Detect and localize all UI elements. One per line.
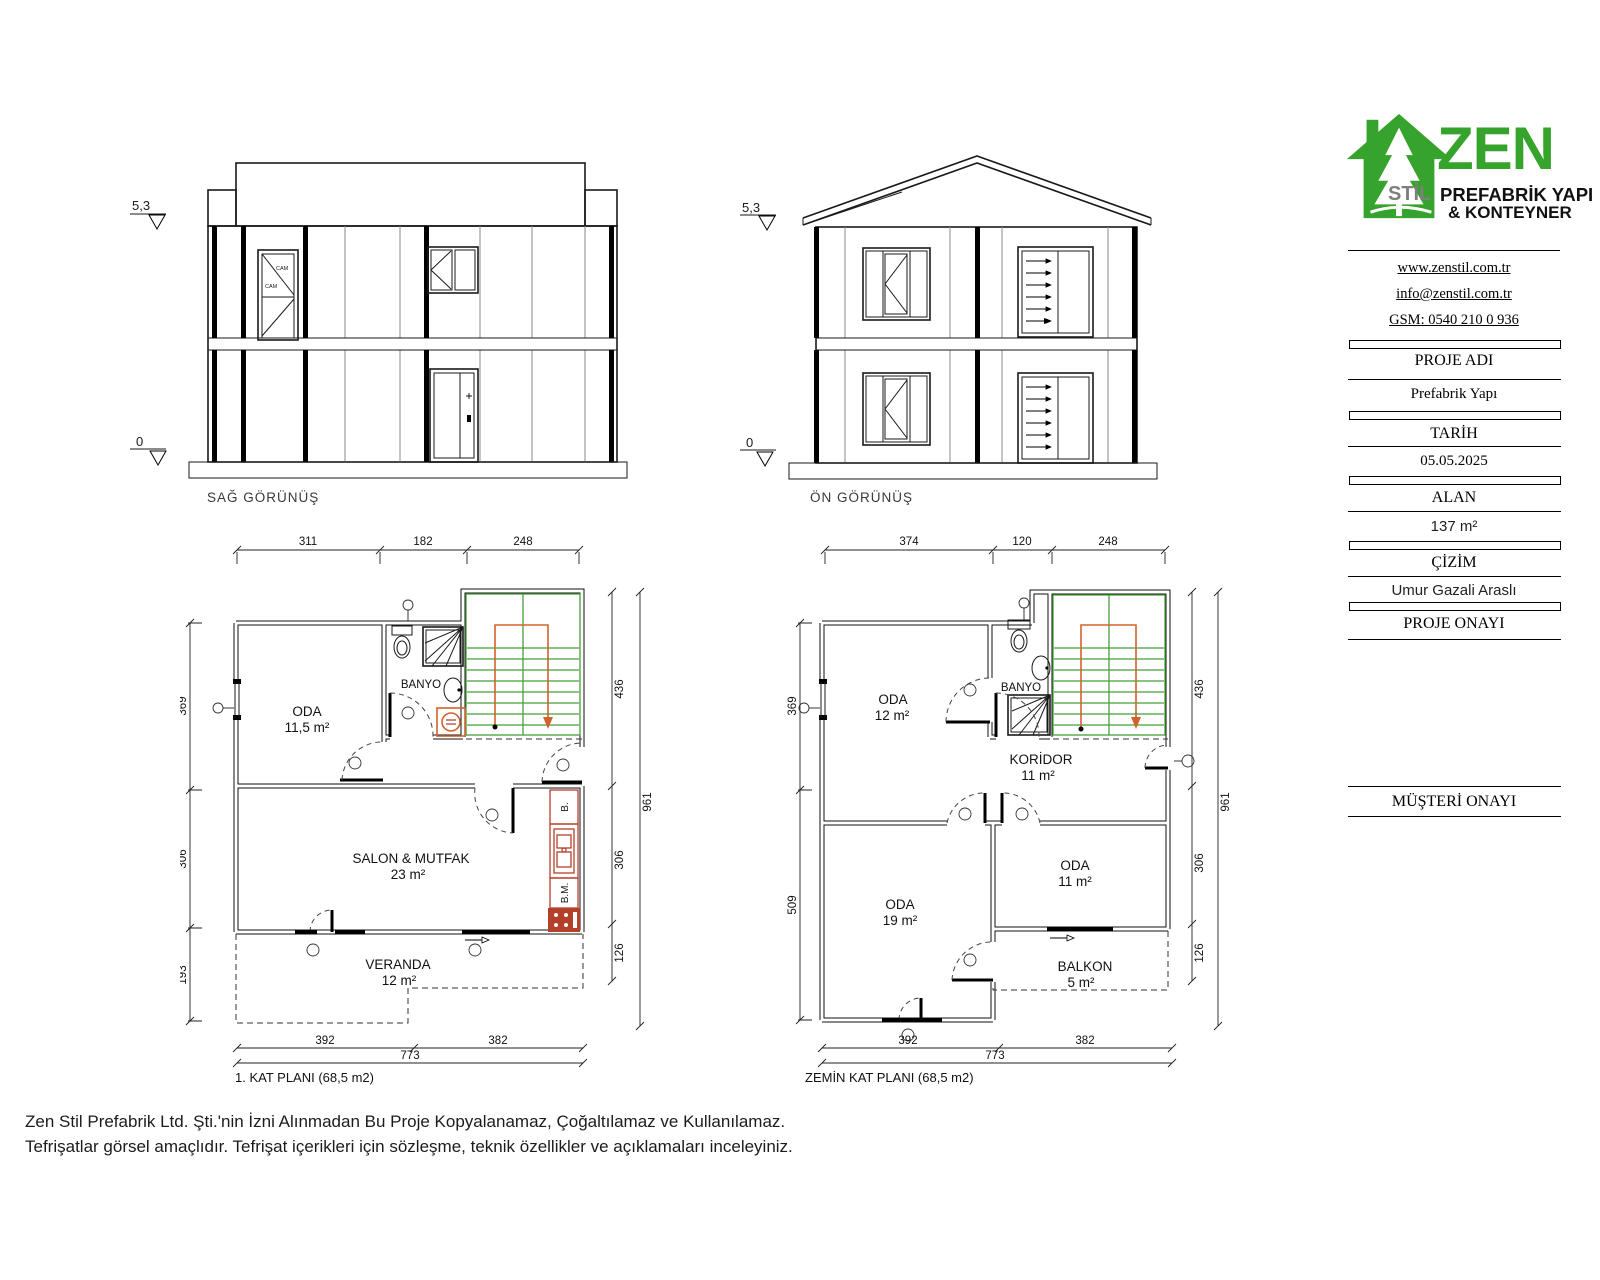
divider-line (1348, 446, 1561, 447)
shower-icon (423, 627, 463, 666)
dim: 306 (1194, 853, 1206, 872)
level-marker-bottom: 0 (740, 435, 776, 466)
divider-bar (1349, 340, 1561, 349)
upper-left-window (863, 248, 930, 320)
lower-sliding-door (1018, 373, 1093, 463)
dim: 382 (488, 1035, 507, 1047)
entry-door (430, 369, 478, 462)
dim: 369 (787, 696, 799, 715)
dim: 120 (1012, 536, 1031, 548)
room-area: 11 m² (1058, 874, 1092, 889)
field-label-proje-adi: PROJE ADI (1348, 352, 1560, 370)
divider-line (1348, 816, 1561, 817)
dim: 311 (299, 536, 317, 548)
walls (819, 592, 1168, 1020)
room-name: ODA (1060, 858, 1089, 873)
dim: 374 (899, 536, 919, 548)
balcony-window: CAM CAM (258, 250, 298, 340)
ground-brick (789, 463, 1157, 479)
level-marker-top: 5,3 (740, 200, 776, 230)
disclaimer-line2: Tefrişatlar görsel amaçlıdır. Tefrişat i… (25, 1137, 793, 1157)
field-label-alan: ALAN (1348, 489, 1560, 507)
brand-stil: STİL (1388, 183, 1431, 206)
field-value-proje-adi: Prefabrik Yapı (1348, 386, 1560, 403)
email-link[interactable]: info@zenstil.com.tr (1348, 286, 1560, 303)
columns (212, 226, 614, 462)
room-area: 12 m² (382, 973, 417, 988)
room-name: KORİDOR (1009, 752, 1072, 767)
dim: 126 (1194, 943, 1206, 962)
room-name: ODA (885, 897, 914, 912)
elevation-title: ÖN GÖRÜNÜŞ (810, 490, 913, 505)
ground-brick (189, 462, 627, 478)
brand-zen: ZEN (1437, 114, 1554, 183)
plan-title: 1. KAT PLANI (68,5 m2) (235, 1070, 374, 1085)
gsm-number: GSM: 0540 210 0 936 (1348, 312, 1560, 329)
divider-bar (1349, 476, 1561, 485)
dim: 509 (787, 895, 799, 914)
room-area: 11 m² (1021, 768, 1055, 783)
toilet-icon (392, 626, 412, 658)
shower-icon (1008, 695, 1050, 735)
room-area: 12 m² (875, 708, 910, 723)
dim: 773 (400, 1050, 419, 1062)
staircase (466, 594, 582, 739)
room-name: ODA (292, 704, 321, 719)
dim: 961 (1220, 792, 1232, 811)
dim: 392 (898, 1035, 917, 1047)
dim: 248 (1098, 536, 1117, 548)
website-link[interactable]: www.zenstil.com.tr (1348, 260, 1560, 277)
room-name: BANYO (401, 679, 441, 691)
doors (295, 693, 582, 943)
divider-line (1348, 786, 1561, 787)
room-area: 5 m² (1068, 975, 1096, 990)
glass-label: CAM (276, 266, 289, 272)
sink-icon (1032, 656, 1050, 680)
wall-body (208, 226, 617, 462)
divider-bar (1349, 411, 1561, 420)
field-label-musteri-onayi: MÜŞTERİ ONAYI (1348, 793, 1560, 811)
staircase (1053, 595, 1168, 739)
sink-icon (444, 678, 462, 702)
disclaimer-line1: Zen Stil Prefabrik Ltd. Şti.'nin İzni Al… (25, 1112, 785, 1132)
room-name: VERANDA (365, 957, 430, 972)
dim: 126 (614, 943, 626, 962)
room-name: SALON & MUTFAK (352, 851, 469, 866)
level-value: 0 (136, 434, 143, 449)
upper-sliding-door (1018, 247, 1093, 337)
level-value: 5,3 (742, 200, 760, 215)
gable-roof (803, 156, 1151, 225)
upper-window (428, 247, 478, 293)
dim: 436 (614, 679, 626, 698)
field-label-proje-onayi: PROJE ONAYI (1348, 615, 1560, 633)
dim: 306 (614, 850, 626, 869)
level-value: 0 (746, 435, 753, 450)
annotation-markers (213, 600, 569, 956)
divider-bar (1349, 602, 1561, 611)
room-area: 19 m² (883, 913, 918, 928)
dim: 306 (180, 849, 189, 868)
ground-floor-plan: ODA 12 m² BANYO KORİDOR 11 m² ODA 19 m² … (740, 530, 1240, 1095)
room-name: BALKON (1058, 959, 1113, 974)
kitchen-units: B. B.M. (548, 790, 580, 932)
dim: 382 (1075, 1035, 1094, 1047)
lower-left-window (863, 373, 930, 445)
level-value: 5,3 (132, 198, 150, 213)
drawing-sheet: CAM CAM 5,3 0 SAĞ GÖRÜN (0, 0, 1600, 1280)
dim: 193 (180, 965, 189, 984)
dim: 369 (180, 696, 189, 715)
field-label-tarih: TARİH (1348, 425, 1560, 443)
field-value-tarih: 05.05.2025 (1348, 453, 1560, 470)
room-area: 23 m² (391, 867, 426, 882)
contact-block: www.zenstil.com.tr info@zenstil.com.tr G… (1348, 250, 1560, 338)
front-elevation-drawing: 5,3 0 ÖN GÖRÜNÜŞ (720, 130, 1200, 515)
room-name: BANYO (1001, 682, 1041, 694)
plan-title: ZEMİN KAT PLANI (68,5 m2) (805, 1070, 974, 1085)
level-marker-bottom: 0 (130, 434, 166, 465)
field-value-alan: 137 m² (1348, 518, 1560, 535)
room-name: ODA (878, 692, 907, 707)
level-marker-top: 5,3 (130, 198, 166, 229)
first-floor-plan: B. B.M. (180, 530, 680, 1095)
room-labels: ODA 11,5 m² BANYO SALON & MUTFAK 23 m² V… (285, 679, 470, 988)
dim: 248 (513, 536, 532, 548)
divider-line (1348, 576, 1561, 577)
divider-line (1348, 379, 1561, 380)
glass-label: CAM (265, 284, 278, 290)
dim: 436 (1194, 679, 1206, 698)
dishwasher-label: B.M. (560, 883, 571, 904)
divider-line (1348, 639, 1561, 640)
divider-bar (1349, 541, 1561, 550)
stove-icon (548, 908, 580, 932)
divider-line (1348, 511, 1561, 512)
roof-band (208, 163, 617, 226)
dim: 392 (315, 1035, 334, 1047)
annotation-markers (799, 598, 1194, 1041)
right-elevation-drawing: CAM CAM 5,3 0 SAĞ GÖRÜN (120, 130, 680, 515)
field-value-cizim: Umur Gazali Araslı (1348, 582, 1560, 599)
room-area: 11,5 m² (285, 720, 330, 735)
fridge-label: B. (560, 802, 571, 811)
brand-line2: & KONTEYNER (1448, 203, 1572, 223)
dim: 182 (413, 536, 432, 548)
dim: 773 (985, 1050, 1004, 1062)
doors (882, 678, 1168, 1020)
field-label-cizim: ÇİZİM (1348, 554, 1560, 572)
dim: 961 (642, 792, 654, 811)
elevation-title: SAĞ GÖRÜNÜŞ (207, 490, 319, 505)
